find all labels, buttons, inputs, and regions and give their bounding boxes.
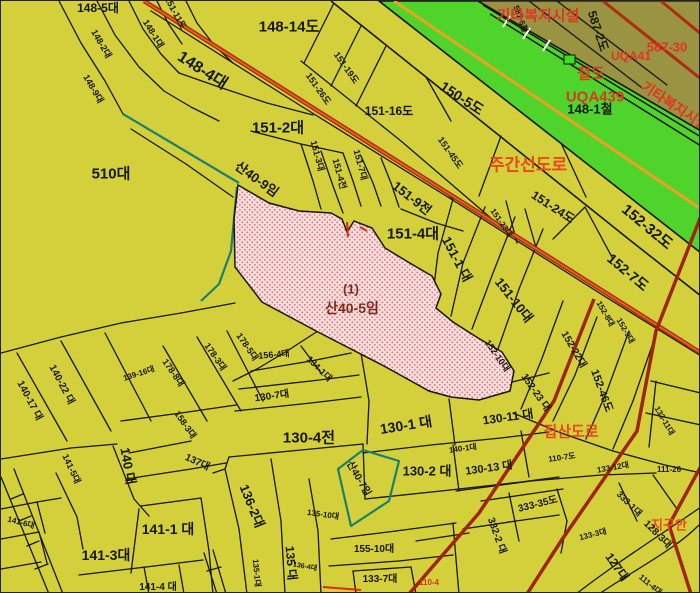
- parcel-label: 333-35도: [517, 495, 559, 514]
- parcel-label: 152-32도: [619, 202, 675, 252]
- parcel-label: 141-5대: [60, 453, 81, 485]
- parcel-label: 139-16대: [122, 365, 155, 383]
- parcel-label: 111-4대: [637, 573, 663, 593]
- parcel-label: 130-13 대: [465, 460, 514, 477]
- parcel-label: 148-9대: [81, 73, 104, 105]
- parcel-label: 151-16도: [365, 105, 413, 117]
- parcel-label: 151-23대: [488, 207, 513, 238]
- parcel-label: 141-1 대: [142, 522, 195, 536]
- facility-label: 철도: [577, 67, 605, 82]
- parcel-label: 133-11대: [653, 405, 676, 437]
- parcel-label: 152-22대: [559, 330, 588, 370]
- labels-layer: 148-5대151-11도148-14도148-4대148-1대148-2대14…: [1, 1, 700, 593]
- parcel-label: 148-4대: [174, 49, 229, 93]
- parcel-label: 178-8대: [160, 358, 185, 389]
- parcel-label: 135-1대: [251, 559, 261, 587]
- parcel-label: 155-10대: [354, 545, 394, 555]
- parcel-label: 137대: [183, 453, 211, 473]
- parcel-label: 148-14도: [259, 20, 320, 35]
- parcel-label: 151-26도: [304, 72, 332, 107]
- road-class-label: 주간선도로: [489, 157, 567, 174]
- parcel-label: 141-4 대: [139, 583, 177, 593]
- parcel-label: 130-2 대: [403, 465, 452, 478]
- parcel-label: 133-12대: [596, 461, 629, 474]
- highlight-parcel-label: 산40-5임: [325, 301, 379, 315]
- parcel-label: 151-19도: [332, 51, 360, 86]
- parcel-label: 141-6대: [7, 516, 36, 531]
- parcel-label: 130-1 대: [379, 414, 433, 436]
- parcel-label: 151-4전: [331, 158, 348, 191]
- parcel-label: 140-1대: [449, 443, 478, 455]
- parcel-label: 152-8대: [595, 300, 616, 328]
- parcel-label: 148-1대: [141, 18, 165, 49]
- parcel-label: 152-10대: [483, 339, 511, 374]
- parcel-label: 135-10대: [306, 509, 339, 521]
- parcel-label: 151-2대: [252, 121, 304, 136]
- parcel-label: 151-9전: [390, 179, 434, 217]
- parcel-label: 148-5대: [77, 2, 119, 14]
- facility-label: 587-30: [647, 41, 687, 54]
- parcel-label: 136-2대: [238, 483, 267, 530]
- parcel-label: 111-26: [657, 466, 681, 474]
- parcel-label: 152-46도: [588, 368, 614, 413]
- parcel-label: 152-7도: [605, 251, 651, 293]
- parcel-label: 151-24도: [529, 189, 576, 225]
- parcel-label: 133-7대: [363, 575, 398, 585]
- parcel-label: 141-3대: [82, 548, 131, 562]
- parcel-label: 332-2 대: [485, 517, 507, 556]
- parcel-label: 140-17 대: [14, 380, 43, 423]
- parcel-label: 178-3대: [202, 342, 227, 373]
- parcel-label: 151-10대: [493, 275, 536, 324]
- facility-label: UQA41: [611, 50, 651, 62]
- parcel-label: 148-2대: [89, 28, 112, 60]
- road-class-label: 집산도로: [543, 425, 598, 440]
- parcel-label: 152-9대: [615, 317, 636, 345]
- facility-label: 기타복지시설: [497, 9, 580, 24]
- facility-label: UQA439: [566, 90, 624, 105]
- cadastral-map-viewport[interactable]: 148-5대151-11도148-14도148-4대148-1대148-2대14…: [0, 0, 700, 593]
- parcel-label: 510대: [92, 167, 131, 182]
- parcel-label: 151-45도: [436, 136, 464, 171]
- small-road-label: 110-4: [419, 579, 439, 587]
- parcel-label: 158-3대: [172, 410, 197, 441]
- parcel-label: 133-3대: [579, 528, 608, 542]
- parcel-label: 150-5도: [438, 79, 486, 117]
- parcel-label: 134-1대: [305, 355, 334, 384]
- parcel-label: 587-2도: [586, 9, 610, 52]
- parcel-label: 156-4대: [258, 349, 290, 361]
- facility-label: 기타복지시설: [639, 79, 700, 133]
- parcel-label: 151-7대: [352, 149, 369, 182]
- parcel-label: 151-3대: [309, 140, 326, 173]
- parcel-label: 333-1대: [615, 490, 644, 519]
- parcel-label: 130-7대: [254, 390, 290, 405]
- parcel-label: 130-11 대: [482, 408, 534, 427]
- highlight-parcel-label: (1): [343, 283, 359, 296]
- parcel-label: 산40-9임: [233, 159, 281, 199]
- parcel-label: 130-4전: [283, 431, 335, 446]
- parcel-label: 110-7도: [548, 452, 576, 464]
- parcel-label: 151-11도: [163, 0, 188, 31]
- parcel-label: 140-22 대: [46, 364, 75, 407]
- parcel-label: 151-4대: [387, 227, 439, 242]
- parcel-label: 산40-7임: [344, 460, 372, 498]
- parcel-label: 151-1 대: [440, 234, 474, 283]
- parcel-label: 178-5대: [234, 332, 259, 363]
- parcel-label: 127대: [603, 551, 631, 583]
- parcel-label: 140 대: [118, 447, 137, 486]
